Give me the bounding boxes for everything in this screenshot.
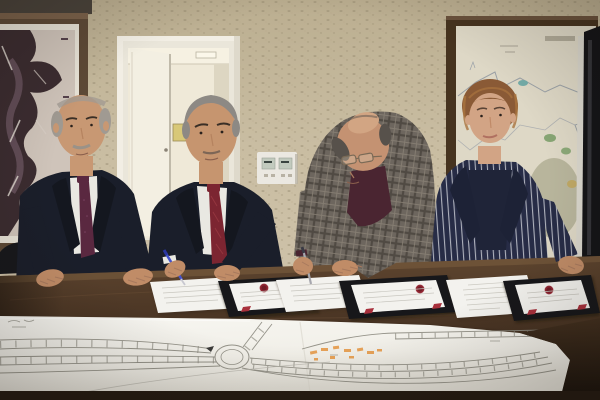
photo-vignette bbox=[0, 0, 600, 400]
photo-signing-ceremony: Indoor signing ceremony: four officials … bbox=[0, 0, 600, 400]
photo-canvas bbox=[0, 0, 600, 400]
